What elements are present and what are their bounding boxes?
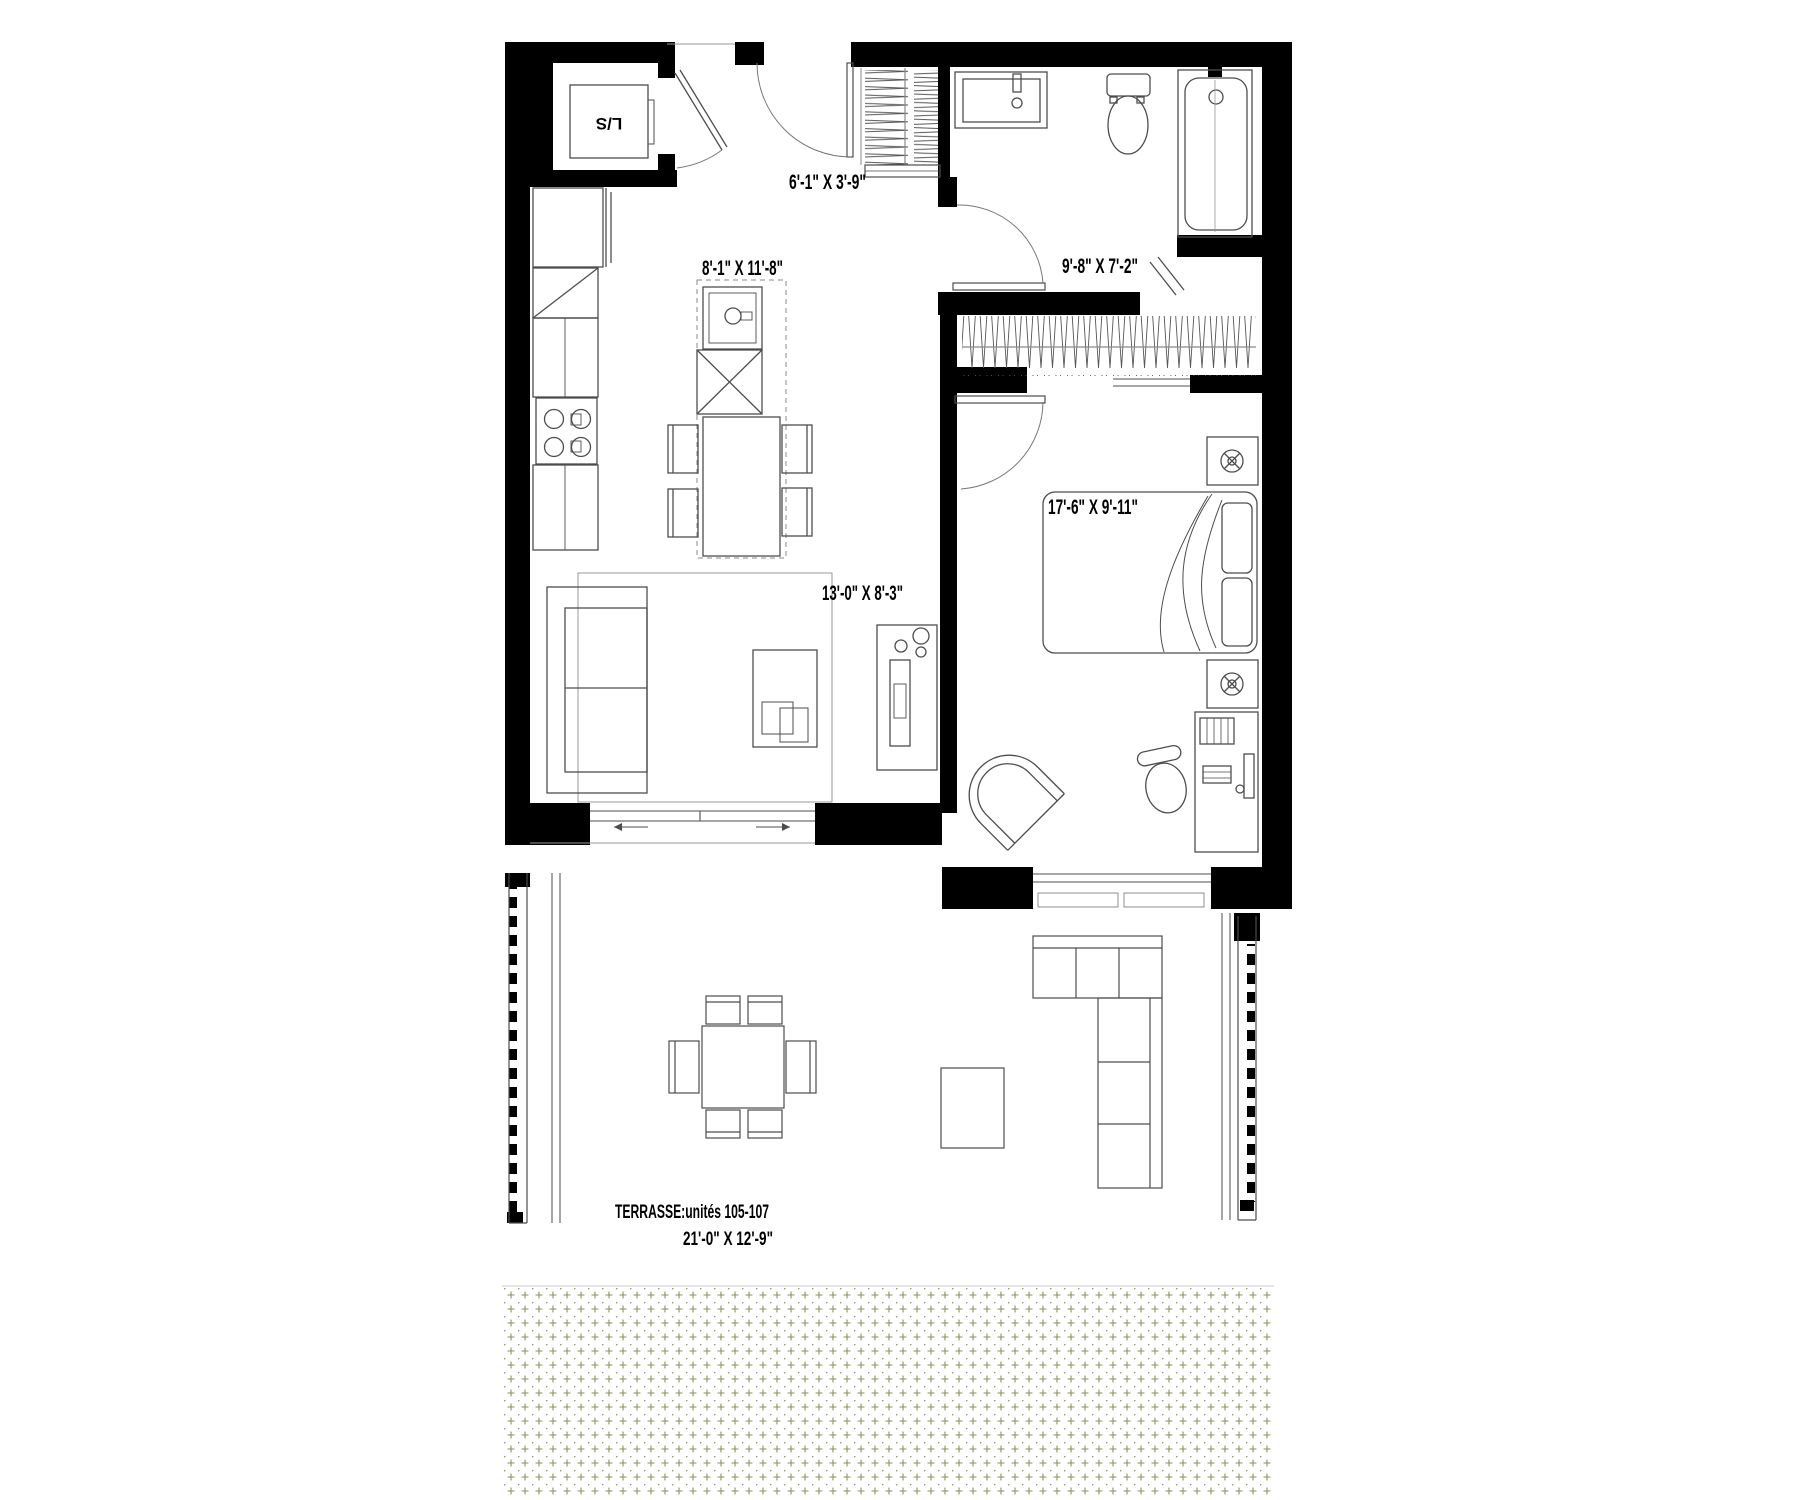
sofa <box>547 587 647 793</box>
living-room <box>530 573 937 843</box>
island-sink <box>703 287 762 349</box>
bedroom-window <box>1033 874 1211 907</box>
nightstand-bottom <box>1207 660 1258 708</box>
floorplan-drawing: L/S <box>0 0 1800 1500</box>
slide-direction-arrows <box>614 823 790 831</box>
bedroom-dimension-label: 17'-6" X 9'-11" <box>1048 496 1138 519</box>
entry-door-leaf <box>847 63 853 157</box>
bathtub <box>1178 70 1252 237</box>
terrace-sectional <box>1033 936 1162 1188</box>
walk-in-closet <box>962 316 1256 386</box>
terrace-label: TERRASSE:unités 105-107 <box>615 1202 769 1223</box>
dining-chairs <box>668 425 812 537</box>
desk <box>1195 712 1258 852</box>
ground-planting-strip <box>502 1286 1274 1498</box>
floorplan-canvas: L/S <box>0 0 1800 1500</box>
pillow <box>1222 578 1252 646</box>
cooktop <box>536 398 597 464</box>
terrace-side-table <box>941 1068 1004 1148</box>
fridge <box>533 188 611 267</box>
bedroom-door <box>955 396 1045 489</box>
kitchen <box>533 188 812 558</box>
living-room-dimension-label: 13'-0" X 8'-3" <box>822 582 903 605</box>
terrace-railing-left <box>509 873 560 1223</box>
kitchen-dimension-label: 8'-1" X 11'-8" <box>702 257 783 280</box>
terrace-dimension-label: 21'-0" X 12'-9" <box>683 1229 773 1250</box>
vanity-sink <box>955 72 1047 128</box>
nightstand-top <box>1207 437 1258 485</box>
terrace-dining-table <box>669 996 816 1138</box>
accent-chair <box>953 739 1065 851</box>
monitor <box>1244 754 1254 798</box>
pillow <box>1222 503 1252 573</box>
tv <box>890 660 910 746</box>
kitchen-counter <box>533 318 598 397</box>
bathroom-dimension-label: 9'-8" X 7'-2" <box>1062 255 1138 278</box>
island <box>697 280 786 558</box>
lower-counter <box>533 465 598 550</box>
entry-dimension-label: 6'-1" X 3'-9" <box>789 171 866 194</box>
dining-table <box>703 417 780 556</box>
office-chair <box>1136 744 1193 817</box>
bedroom <box>953 396 1258 907</box>
linen-door <box>1150 257 1184 295</box>
mouse <box>1236 785 1244 793</box>
walls <box>505 42 1292 1223</box>
coat-closet <box>861 68 940 177</box>
corner-counter <box>533 268 598 318</box>
laundry-closet <box>570 70 727 168</box>
terrace <box>509 873 1256 1223</box>
coffee-table <box>753 650 817 747</box>
laundry-door-leaf <box>675 70 727 150</box>
bathroom-door <box>953 205 1045 290</box>
toilet <box>1107 74 1150 154</box>
media-console <box>877 625 937 770</box>
keyboard <box>1203 766 1231 783</box>
dishwasher <box>697 350 762 414</box>
laundry-closet-label: L/S <box>596 114 622 133</box>
terrace-railing-right <box>1222 913 1256 1220</box>
